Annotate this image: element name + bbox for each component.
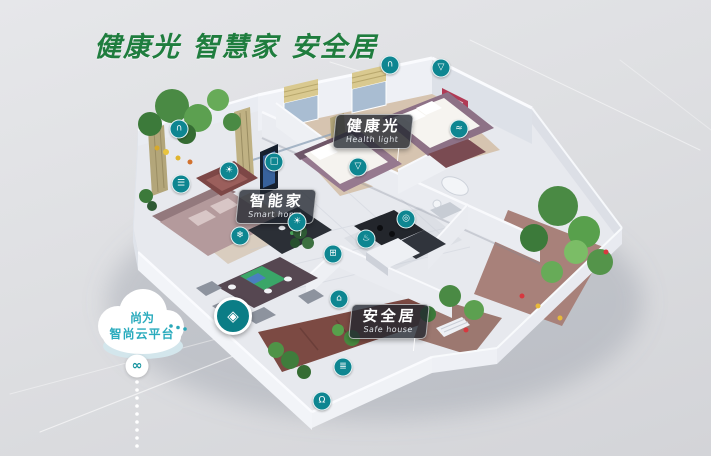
downlight-icon-2: ☀: [288, 213, 307, 232]
kitchen-hood-icon: ♨: [357, 230, 376, 249]
label-health-light-zh: 健康光: [346, 118, 402, 135]
tv-icon: □: [265, 153, 284, 172]
label-health-light-en: Health light: [345, 135, 400, 144]
cloud-platform-name-line2: 智尚云平台: [98, 327, 186, 343]
switch-panel-icon: ⊞: [324, 245, 343, 264]
ac-icon: ❄: [231, 227, 250, 246]
bedside-lamp-icon: ▽: [349, 158, 368, 177]
curtain-icon: ∩: [381, 56, 400, 75]
smart-home-poster: 健康光 智慧家 安全居 健康光 Health light 智能家 Smart h…: [0, 0, 711, 456]
smart-hub-badge: ◈: [214, 297, 252, 335]
label-smart-home-zh: 智能家: [249, 193, 305, 210]
label-health-light: 健康光 Health light: [332, 114, 414, 149]
ceiling-light-icon: ▽: [432, 59, 451, 78]
page-title: 健康光 智慧家 安全居: [94, 25, 378, 64]
washer-icon: ◎: [397, 210, 416, 229]
label-safe-house-zh: 安全居: [362, 308, 418, 325]
water-heater-icon: ≈: [450, 120, 469, 139]
label-safe-house-en: Safe house: [361, 325, 416, 334]
cloud-link-icon: ∞: [126, 355, 149, 378]
cloud-platform-name-line1: 尚为: [98, 311, 186, 327]
curtain-icon-2: ∩: [170, 120, 189, 139]
label-safe-house: 安全居 Safe house: [348, 304, 430, 339]
door-lock-icon: Ω: [313, 392, 332, 411]
door-sensor-icon: ⌂: [330, 290, 349, 309]
gate-icon: ≣: [334, 358, 353, 377]
downlight-icon: ☀: [220, 162, 239, 181]
cloud-platform-badge: 尚为 智尚云平台: [98, 311, 186, 342]
floor-plan-illustration: [0, 0, 711, 456]
blinds-icon: ☰: [172, 175, 191, 194]
